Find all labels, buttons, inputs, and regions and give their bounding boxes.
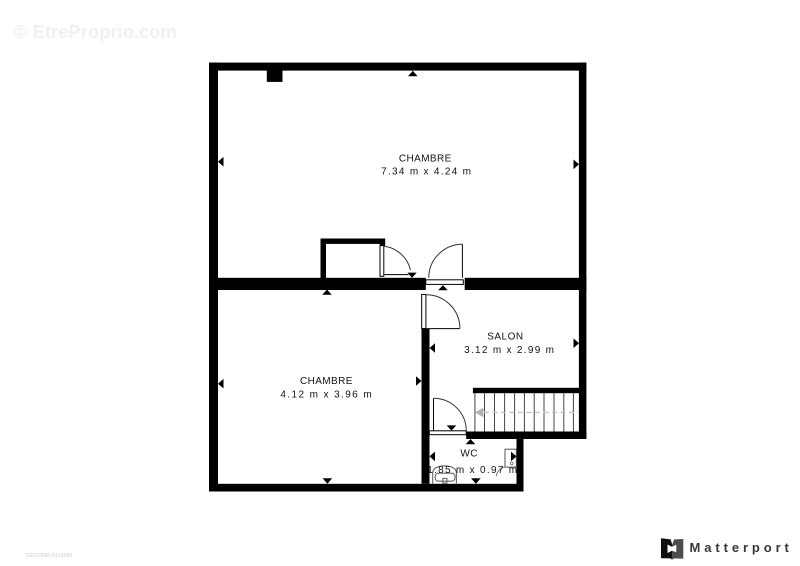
- svg-text:© EtreProprio.com: © EtreProprio.com: [14, 21, 177, 42]
- svg-text:Matterport: Matterport: [690, 540, 793, 555]
- svg-text:7.34 m x 4.24 m: 7.34 m x 4.24 m: [381, 167, 472, 178]
- svg-text:3.12 m x 2.99 m: 3.12 m x 2.99 m: [464, 345, 555, 356]
- svg-text:1.85 m x 0.97 m: 1.85 m x 0.97 m: [427, 465, 518, 476]
- svg-text:SECOND FLOOR: SECOND FLOOR: [26, 553, 73, 559]
- svg-text:SALON: SALON: [487, 332, 523, 343]
- svg-text:4.12 m x 3.96 m: 4.12 m x 3.96 m: [280, 389, 373, 400]
- svg-text:CHAMBRE: CHAMBRE: [399, 153, 452, 164]
- svg-text:CHAMBRE: CHAMBRE: [300, 376, 353, 387]
- svg-text:WC: WC: [460, 449, 477, 460]
